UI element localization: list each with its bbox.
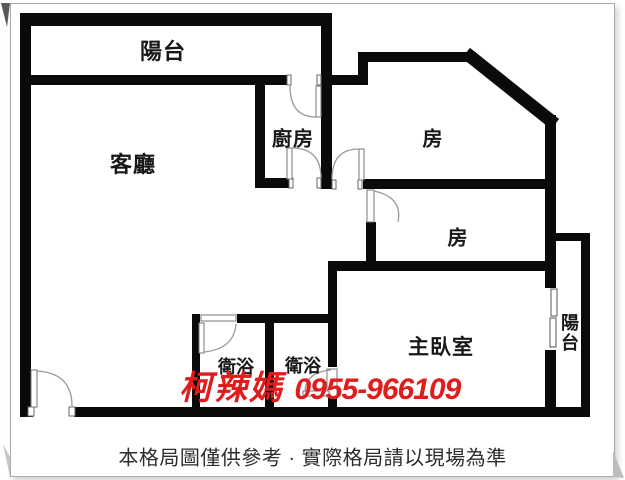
floorplan-page: { "floorplan": { "rooms": { "balcony_top…	[0, 0, 625, 480]
label-room-1: 房	[423, 123, 444, 152]
label-master-bedroom: 主臥室	[408, 331, 474, 361]
label-balcony-right: 陽台	[560, 314, 580, 354]
kitchen-door-bottom	[287, 148, 321, 188]
room2-door	[367, 190, 399, 222]
label-living-room: 客廳	[110, 147, 156, 179]
disclaimer-text: 本格局圖僅供參考 · 實際格局請以現場為準	[0, 442, 625, 471]
watermark: 柯辣媽 0955-966109	[179, 361, 460, 409]
entrance-door	[28, 370, 75, 416]
watermark-agent-name: 柯辣媽	[179, 369, 284, 406]
kitchen-door-top	[287, 75, 321, 117]
watermark-phone: 0955-966109	[294, 373, 460, 406]
balcony-sliding-door	[550, 289, 557, 347]
page-curl-top-left	[1, 3, 10, 27]
room1-door	[332, 149, 364, 189]
bathroom1-door	[199, 315, 236, 353]
label-room-2: 房	[448, 222, 469, 251]
label-kitchen: 廚房	[272, 123, 314, 152]
label-balcony-top: 陽台	[140, 34, 186, 66]
